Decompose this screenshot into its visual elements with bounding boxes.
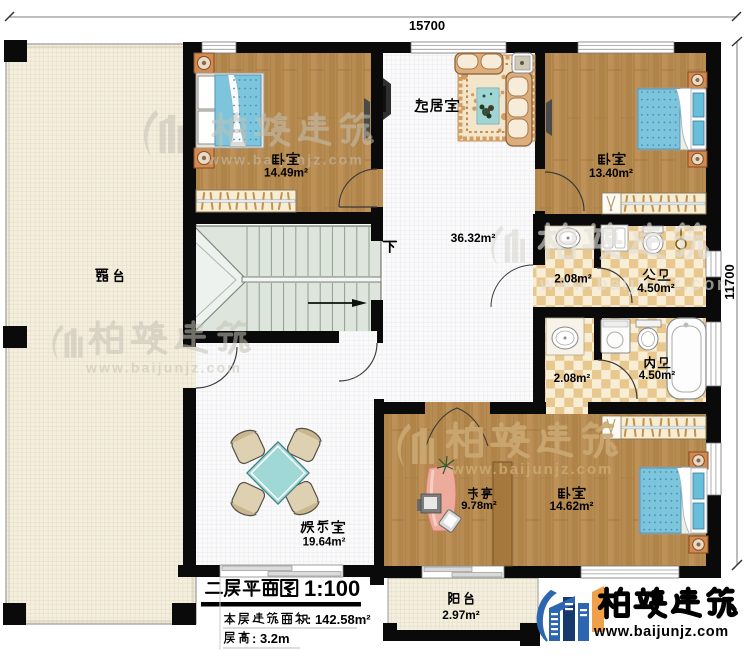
svg-text:9.78m²: 9.78m² <box>461 500 497 512</box>
svg-text:13.40m²: 13.40m² <box>589 166 633 180</box>
svg-text:www.baijunjz.com: www.baijunjz.com <box>85 360 242 376</box>
svg-text:2.08m²: 2.08m² <box>554 272 591 286</box>
svg-text:: 3.2m: : 3.2m <box>252 631 290 646</box>
svg-text:2.97m²: 2.97m² <box>442 608 479 622</box>
svg-text:11700: 11700 <box>722 264 737 299</box>
svg-text:36.32m²: 36.32m² <box>451 231 496 245</box>
svg-text:4.50m²: 4.50m² <box>637 281 674 295</box>
svg-text:1:100: 1:100 <box>304 576 360 601</box>
svg-text:4.50m²: 4.50m² <box>639 370 676 382</box>
svg-text:15700: 15700 <box>409 18 445 33</box>
svg-text:19.64m²: 19.64m² <box>303 537 346 549</box>
svg-text:www.baijunjz.com: www.baijunjz.com <box>451 461 613 478</box>
svg-text:14.49m²: 14.49m² <box>264 166 308 180</box>
svg-text:14.62m²: 14.62m² <box>550 499 594 513</box>
svg-text:2.08m²: 2.08m² <box>554 373 591 385</box>
svg-text:www.baijunjz.com: www.baijunjz.com <box>593 624 729 640</box>
svg-text:: 142.58m²: : 142.58m² <box>307 612 371 627</box>
